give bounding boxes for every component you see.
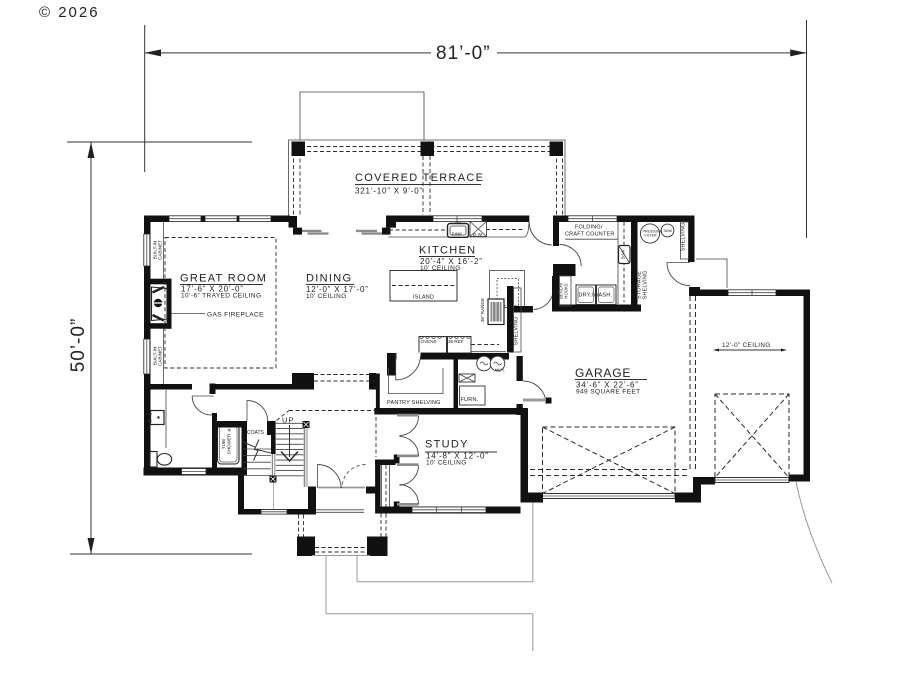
svg-text:OVENS: OVENS — [421, 339, 437, 344]
svg-text:DRY./WASH.: DRY./WASH. — [579, 293, 613, 299]
svg-text:10’ CEILING: 10’ CEILING — [426, 460, 467, 467]
svg-text:10’-6” TRAYED CEILING: 10’-6” TRAYED CEILING — [181, 293, 261, 300]
svg-text:SINK: SINK — [621, 249, 626, 259]
svg-text:CABINET: CABINET — [158, 240, 163, 260]
svg-text:81’-0”: 81’-0” — [436, 43, 491, 64]
svg-text:FILTER: FILTER — [645, 234, 658, 238]
svg-text:GAS FIREPLACE: GAS FIREPLACE — [207, 312, 264, 319]
svg-text:SHELVING: SHELVING — [514, 316, 520, 345]
svg-text:GREAT ROOM: GREAT ROOM — [180, 273, 267, 285]
svg-text:SINK: SINK — [452, 232, 464, 237]
svg-text:UP: UP — [282, 416, 294, 425]
svg-text:ISLAND: ISLAND — [413, 295, 434, 301]
svg-text:W.H.: W.H. — [495, 368, 505, 373]
svg-text:321’-10” X 9’-0”: 321’-10” X 9’-0” — [355, 187, 423, 196]
svg-text:SHELVING: SHELVING — [643, 270, 649, 299]
svg-text:TANK: TANK — [663, 229, 673, 233]
svg-text:FURN.: FURN. — [461, 397, 479, 403]
svg-text:GARAGE: GARAGE — [575, 366, 631, 380]
svg-text:12’-0” CEILING: 12’-0” CEILING — [722, 342, 771, 349]
svg-text:COVERED TERRACE: COVERED TERRACE — [355, 172, 484, 184]
svg-text:HOOKS: HOOKS — [564, 283, 569, 298]
svg-text:10’ CEILING: 10’ CEILING — [306, 293, 347, 300]
svg-text:50’-0”: 50’-0” — [68, 318, 89, 373]
svg-text:CRAFT COUNTER: CRAFT COUNTER — [565, 232, 615, 238]
svg-text:SHELVING: SHELVING — [681, 222, 687, 251]
svg-text:36” RANGE: 36” RANGE — [480, 298, 485, 322]
svg-text:TUB/: TUB/ — [221, 438, 226, 449]
svg-text:D.W.: D.W. — [473, 232, 483, 237]
svg-text:© 2026: © 2026 — [39, 4, 100, 21]
svg-text:949 SQUARE FEET: 949 SQUARE FEET — [576, 389, 641, 396]
svg-text:FOLDING/: FOLDING/ — [575, 225, 603, 231]
svg-text:COATS: COATS — [247, 430, 265, 436]
svg-text:✳: ✳ — [227, 428, 233, 432]
svg-text:36 REF: 36 REF — [448, 339, 464, 344]
svg-text:DINING: DINING — [306, 273, 352, 285]
svg-text:STUDY: STUDY — [425, 439, 469, 451]
svg-text:PANTRY SHELVING: PANTRY SHELVING — [387, 400, 441, 406]
svg-text:KITCHEN: KITCHEN — [419, 245, 476, 257]
svg-text:SHOWER: SHOWER — [227, 433, 232, 454]
svg-text:CABINET: CABINET — [158, 346, 163, 366]
